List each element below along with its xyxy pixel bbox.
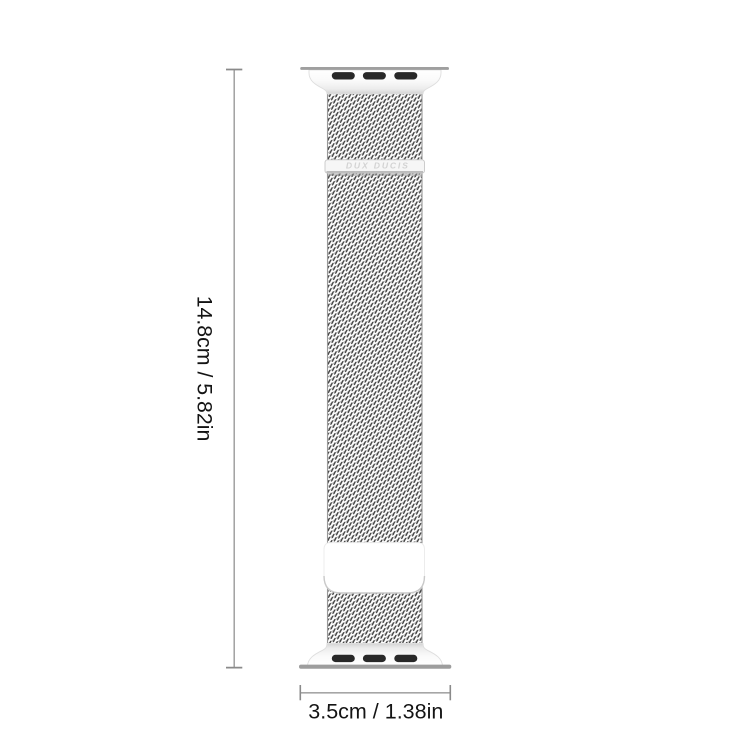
svg-text:3.5cm / 1.38in: 3.5cm / 1.38in xyxy=(308,700,443,724)
svg-text:DUX DUCIS: DUX DUCIS xyxy=(346,161,410,171)
svg-text:14.8cm / 5.82in: 14.8cm / 5.82in xyxy=(193,296,217,442)
